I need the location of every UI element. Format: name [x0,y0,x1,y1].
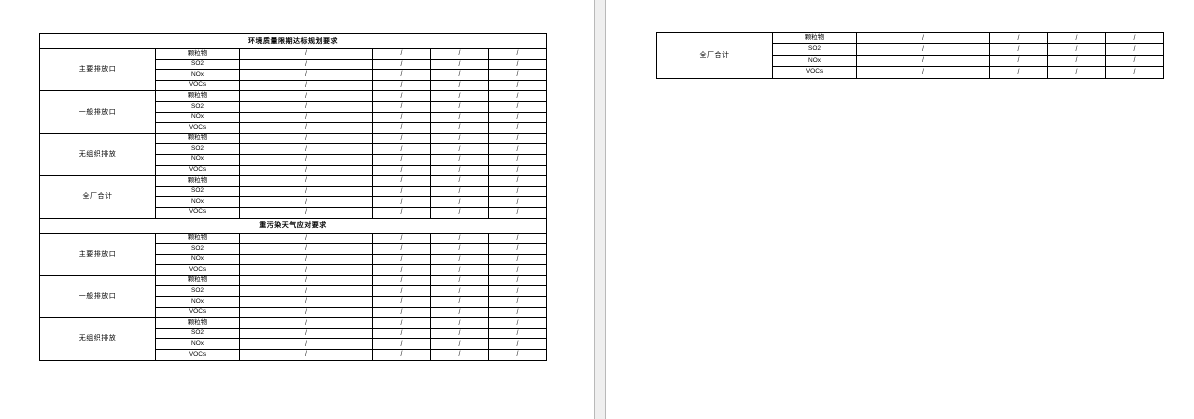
pollutant-label: 颗粒物 [156,233,240,244]
value-cell: / [373,265,431,276]
value-cell: / [489,165,547,176]
pollutant-label: 颗粒物 [156,133,240,144]
value-cell: / [489,318,547,329]
pollutant-label: SO2 [156,244,240,255]
value-cell: / [431,80,489,91]
value-cell: / [489,244,547,255]
value-cell: / [431,307,489,318]
value-cell: / [431,275,489,286]
value-cell: / [373,176,431,187]
value-cell: / [489,197,547,208]
pollutant-row: 全厂合计颗粒物//// [657,33,1164,44]
value-cell: / [990,55,1048,66]
pollutant-label: 颗粒物 [156,275,240,286]
pollutant-row: 主要排放口颗粒物//// [40,49,547,60]
value-cell: / [431,123,489,134]
pollutant-row: 主要排放口颗粒物//// [40,233,547,244]
pollutant-row: 一般排放口颗粒物//// [40,275,547,286]
value-cell: / [1106,33,1164,44]
section-title-row: 重污染天气应对要求 [40,218,547,233]
value-cell: / [373,80,431,91]
value-cell: / [240,112,373,123]
value-cell: / [240,207,373,218]
value-cell: / [489,144,547,155]
pollutant-row: 一般排放口颗粒物//// [40,91,547,102]
value-cell: / [489,339,547,350]
value-cell: / [373,207,431,218]
document-viewport: 环境质量限期达标规划要求主要排放口颗粒物////SO2////NOx////VO… [0,0,1194,419]
section-title: 重污染天气应对要求 [40,218,547,233]
value-cell: / [240,144,373,155]
value-cell: / [431,207,489,218]
value-cell: / [1048,55,1106,66]
value-cell: / [489,176,547,187]
value-cell: / [373,197,431,208]
outlet-label: 主要排放口 [40,49,156,91]
value-cell: / [240,318,373,329]
value-cell: / [240,197,373,208]
pollutant-label: NOx [156,112,240,123]
value-cell: / [240,133,373,144]
value-cell: / [431,233,489,244]
value-cell: / [240,91,373,102]
value-cell: / [431,318,489,329]
pollutant-label: NOx [156,197,240,208]
document-page-2: 全厂合计颗粒物////SO2////NOx////VOCs//// [606,0,1194,419]
value-cell: / [489,307,547,318]
value-cell: / [489,275,547,286]
pollutant-label: VOCs [156,307,240,318]
pollutant-label: VOCs [773,67,857,78]
value-cell: / [373,244,431,255]
value-cell: / [240,154,373,165]
value-cell: / [373,328,431,339]
value-cell: / [431,286,489,297]
section-title-row: 环境质量限期达标规划要求 [40,34,547,49]
value-cell: / [373,91,431,102]
value-cell: / [857,44,990,55]
pollutant-label: VOCs [156,350,240,361]
value-cell: / [431,350,489,361]
value-cell: / [373,186,431,197]
value-cell: / [240,275,373,286]
table-2-body: 全厂合计颗粒物////SO2////NOx////VOCs//// [657,33,1164,79]
value-cell: / [373,275,431,286]
pollutant-label: 颗粒物 [156,91,240,102]
value-cell: / [373,101,431,112]
pollutant-label: NOx [773,55,857,66]
value-cell: / [431,254,489,265]
pollutant-label: VOCs [156,165,240,176]
value-cell: / [1048,33,1106,44]
pollutant-label: SO2 [156,328,240,339]
value-cell: / [240,286,373,297]
pollutant-label: 颗粒物 [773,33,857,44]
value-cell: / [240,244,373,255]
value-cell: / [373,339,431,350]
pollutant-label: VOCs [156,80,240,91]
value-cell: / [240,328,373,339]
value-cell: / [373,233,431,244]
value-cell: / [489,328,547,339]
value-cell: / [489,350,547,361]
value-cell: / [1106,67,1164,78]
pollutant-label: NOx [156,154,240,165]
value-cell: / [1106,55,1164,66]
pollutant-label: VOCs [156,207,240,218]
value-cell: / [489,123,547,134]
value-cell: / [489,112,547,123]
emission-requirements-table-page2: 全厂合计颗粒物////SO2////NOx////VOCs//// [656,32,1164,79]
outlet-label: 一般排放口 [40,91,156,133]
value-cell: / [240,165,373,176]
value-cell: / [431,197,489,208]
value-cell: / [489,133,547,144]
table-1-body: 环境质量限期达标规划要求主要排放口颗粒物////SO2////NOx////VO… [40,34,547,361]
value-cell: / [990,44,1048,55]
value-cell: / [1106,44,1164,55]
value-cell: / [431,244,489,255]
value-cell: / [489,154,547,165]
value-cell: / [373,307,431,318]
pollutant-label: 颗粒物 [156,49,240,60]
value-cell: / [240,307,373,318]
value-cell: / [431,154,489,165]
value-cell: / [240,123,373,134]
value-cell: / [431,328,489,339]
pollutant-label: SO2 [156,59,240,70]
value-cell: / [1048,44,1106,55]
outlet-label: 全厂合计 [657,33,773,79]
pollutant-label: SO2 [773,44,857,55]
value-cell: / [240,49,373,60]
value-cell: / [489,186,547,197]
outlet-label: 一般排放口 [40,275,156,317]
section-title: 环境质量限期达标规划要求 [40,34,547,49]
pollutant-row: 无组织排放颗粒物//// [40,318,547,329]
value-cell: / [431,133,489,144]
pollutant-label: SO2 [156,186,240,197]
pollutant-label: SO2 [156,101,240,112]
value-cell: / [240,233,373,244]
value-cell: / [373,70,431,81]
value-cell: / [990,33,1048,44]
value-cell: / [373,123,431,134]
pollutant-label: 颗粒物 [156,176,240,187]
value-cell: / [431,112,489,123]
value-cell: / [489,49,547,60]
value-cell: / [431,265,489,276]
value-cell: / [431,70,489,81]
value-cell: / [489,80,547,91]
value-cell: / [373,59,431,70]
value-cell: / [431,165,489,176]
value-cell: / [431,339,489,350]
value-cell: / [373,350,431,361]
pollutant-label: NOx [156,297,240,308]
pollutant-label: NOx [156,70,240,81]
value-cell: / [431,144,489,155]
value-cell: / [431,101,489,112]
value-cell: / [373,165,431,176]
pollutant-label: SO2 [156,144,240,155]
value-cell: / [240,254,373,265]
value-cell: / [373,133,431,144]
value-cell: / [240,70,373,81]
pollutant-label: VOCs [156,123,240,134]
value-cell: / [373,144,431,155]
value-cell: / [431,186,489,197]
value-cell: / [431,91,489,102]
value-cell: / [373,154,431,165]
value-cell: / [990,67,1048,78]
value-cell: / [240,101,373,112]
value-cell: / [489,91,547,102]
value-cell: / [857,67,990,78]
outlet-label: 无组织排放 [40,133,156,175]
value-cell: / [240,59,373,70]
value-cell: / [373,49,431,60]
value-cell: / [857,55,990,66]
value-cell: / [1048,67,1106,78]
outlet-label: 主要排放口 [40,233,156,275]
value-cell: / [373,286,431,297]
pollutant-label: NOx [156,254,240,265]
value-cell: / [489,70,547,81]
page-gap-divider [594,0,606,419]
document-page-1: 环境质量限期达标规划要求主要排放口颗粒物////SO2////NOx////VO… [0,0,594,419]
value-cell: / [373,318,431,329]
value-cell: / [373,297,431,308]
pollutant-row: 无组织排放颗粒物//// [40,133,547,144]
pollutant-label: SO2 [156,286,240,297]
value-cell: / [373,254,431,265]
pollutant-label: NOx [156,339,240,350]
pollutant-label: 颗粒物 [156,318,240,329]
value-cell: / [240,80,373,91]
emission-requirements-table-page1: 环境质量限期达标规划要求主要排放口颗粒物////SO2////NOx////VO… [39,33,547,361]
pollutant-label: VOCs [156,265,240,276]
value-cell: / [489,254,547,265]
value-cell: / [240,186,373,197]
value-cell: / [489,233,547,244]
value-cell: / [489,207,547,218]
value-cell: / [857,33,990,44]
value-cell: / [431,49,489,60]
value-cell: / [489,265,547,276]
value-cell: / [431,297,489,308]
value-cell: / [240,265,373,276]
value-cell: / [240,176,373,187]
value-cell: / [240,350,373,361]
pollutant-row: 全厂合计颗粒物//// [40,176,547,187]
value-cell: / [240,339,373,350]
value-cell: / [489,59,547,70]
value-cell: / [489,101,547,112]
value-cell: / [431,176,489,187]
value-cell: / [373,112,431,123]
value-cell: / [489,297,547,308]
value-cell: / [489,286,547,297]
value-cell: / [240,297,373,308]
outlet-label: 无组织排放 [40,318,156,360]
outlet-label: 全厂合计 [40,176,156,218]
value-cell: / [431,59,489,70]
